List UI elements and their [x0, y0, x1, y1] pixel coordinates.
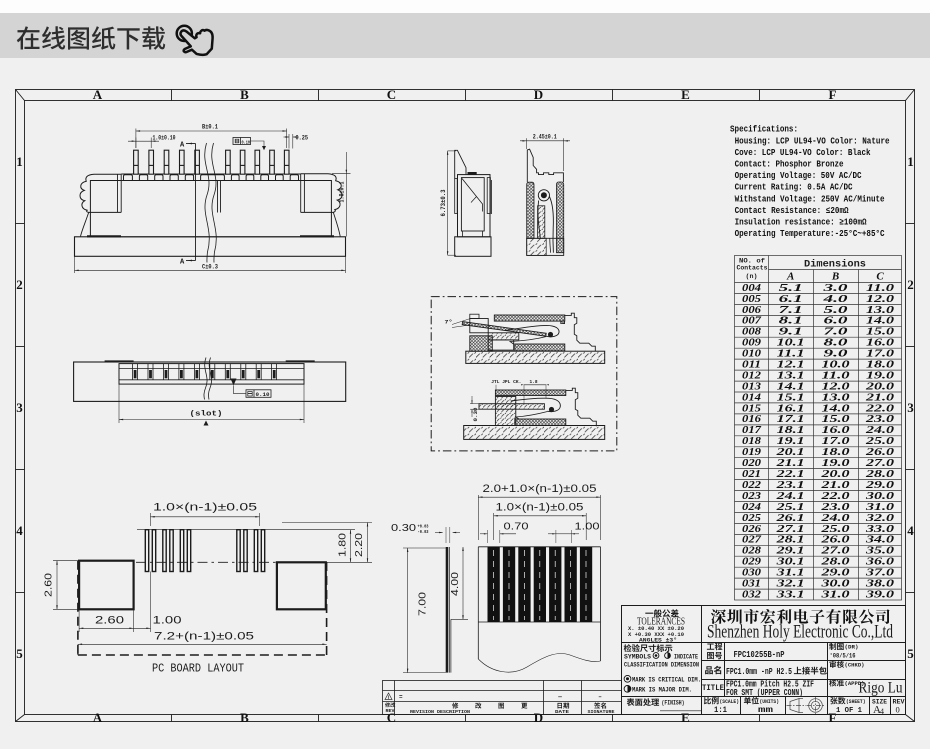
svg-text:Housing: LCP UL94-VO Color: Na: Housing: LCP UL94-VO Color: Nature: [735, 136, 890, 146]
svg-text:MARK IS CRITICAL DIM.: MARK IS CRITICAL DIM.: [632, 677, 701, 684]
svg-text:A: A: [93, 710, 103, 725]
svg-text:4.0: 4.0: [822, 294, 849, 305]
svg-text:28.0: 28.0: [864, 469, 895, 480]
svg-text:Contact Resistance: ≤20mΩ: Contact Resistance: ≤20mΩ: [735, 206, 849, 216]
svg-text:Contacts: Contacts: [737, 265, 768, 272]
svg-text:2.60: 2.60: [43, 573, 55, 597]
svg-text:22.1: 22.1: [775, 469, 805, 480]
svg-text:17.0: 17.0: [866, 349, 895, 360]
svg-text:13.0: 13.0: [822, 392, 851, 403]
svg-text:B: B: [831, 271, 839, 283]
svg-text:5.1: 5.1: [779, 283, 803, 294]
svg-text:0: 0: [896, 705, 900, 715]
svg-text:14.1: 14.1: [777, 381, 805, 392]
svg-text:31.0: 31.0: [820, 589, 851, 600]
svg-text:028: 028: [742, 546, 762, 557]
svg-text:031: 031: [742, 579, 761, 590]
svg-text:27.0: 27.0: [864, 458, 895, 469]
svg-text:32.0: 32.0: [864, 513, 895, 524]
svg-text:Shenzhen Holy Electronic Co.,L: Shenzhen Holy Electronic Co.,Ltd: [707, 623, 894, 643]
svg-text:010: 010: [742, 349, 762, 360]
svg-text:015: 015: [742, 403, 761, 414]
svg-text:FPC1.0mm -nP H2.5: FPC1.0mm -nP H2.5: [726, 667, 792, 677]
svg-text:024: 024: [742, 502, 761, 513]
svg-text:Insulation resistance: ≥100mΩ: Insulation resistance: ≥100mΩ: [735, 218, 867, 228]
svg-text:11.0: 11.0: [822, 370, 851, 381]
svg-text:Current Rating: 0.5A AC/DC: Current Rating: 0.5A AC/DC: [735, 183, 853, 193]
svg-text:025: 025: [742, 513, 761, 524]
svg-text:35.0: 35.0: [864, 546, 895, 557]
svg-text:032: 032: [742, 589, 761, 600]
svg-text:9.1: 9.1: [779, 327, 803, 338]
svg-text:0.10: 0.10: [242, 139, 251, 145]
svg-text:29.1: 29.1: [775, 546, 805, 557]
svg-text:20.0: 20.0: [820, 469, 851, 480]
svg-text:20.1: 20.1: [775, 447, 805, 458]
svg-text:1.0×(n-1)±0.05: 1.0×(n-1)±0.05: [496, 502, 584, 514]
svg-text:005: 005: [742, 294, 761, 305]
svg-text:Operating Temperature:-25°C~+8: Operating Temperature:-25°C~+85°C: [735, 229, 885, 239]
svg-text:29.0: 29.0: [864, 480, 895, 491]
svg-text:34.0: 34.0: [864, 535, 895, 546]
svg-text:11.0: 11.0: [866, 283, 895, 294]
svg-text:009: 009: [742, 338, 762, 349]
svg-text:19.1: 19.1: [777, 436, 805, 447]
svg-text:30.0: 30.0: [820, 579, 851, 590]
svg-text:018: 018: [742, 436, 762, 447]
svg-text:B±0.1: B±0.1: [202, 124, 218, 131]
svg-text:1: 1: [16, 154, 23, 169]
svg-text:JTL JPL CK.: JTL JPL CK.: [491, 380, 521, 385]
svg-text:2.20: 2.20: [353, 533, 365, 557]
svg-text:2: 2: [907, 277, 914, 292]
svg-text:3.0: 3.0: [822, 283, 849, 294]
svg-text:2.60: 2.60: [95, 615, 124, 627]
svg-text:24.0: 24.0: [820, 513, 851, 524]
svg-text:7.1: 7.1: [779, 305, 803, 316]
svg-text:26.1: 26.1: [775, 513, 805, 524]
svg-text:4.00: 4.00: [449, 572, 461, 596]
svg-text:CLASSIFICATION DIMENSION: CLASSIFICATION DIMENSION: [624, 661, 699, 668]
svg-text:12.0: 12.0: [866, 294, 895, 305]
svg-text:0.30: 0.30: [473, 408, 479, 422]
svg-text:014: 014: [742, 392, 761, 403]
svg-text:Dimensions: Dimensions: [804, 259, 866, 271]
svg-text:Specifications:: Specifications:: [730, 125, 798, 135]
svg-text:23.0: 23.0: [820, 502, 851, 513]
svg-text:—: —: [557, 693, 562, 700]
svg-text:PC BOARD LAYOUT: PC BOARD LAYOUT: [152, 662, 244, 676]
svg-text:31.0: 31.0: [864, 502, 895, 513]
svg-text:MARK IS MAJOR DIM.: MARK IS MAJOR DIM.: [632, 687, 692, 694]
svg-text:-0.03: -0.03: [418, 529, 429, 535]
svg-text:16.0: 16.0: [866, 338, 895, 349]
svg-text:18.0: 18.0: [822, 447, 851, 458]
svg-text:21.0: 21.0: [864, 392, 895, 403]
svg-text:38.0: 38.0: [864, 579, 895, 590]
svg-text:E: E: [681, 710, 690, 725]
svg-text:ANGLES ±3°: ANGLES ±3°: [639, 636, 677, 643]
svg-text:15.0: 15.0: [866, 327, 895, 338]
svg-text:REVISION DESCRIPTION: REVISION DESCRIPTION: [410, 709, 470, 715]
svg-text:022: 022: [742, 480, 761, 491]
svg-text:23.0: 23.0: [864, 414, 895, 425]
svg-text:39.0: 39.0: [864, 589, 895, 600]
svg-text:17.1: 17.1: [777, 414, 805, 425]
svg-text:(UNITS): (UNITS): [760, 698, 780, 705]
svg-text:004: 004: [742, 283, 761, 294]
svg-text:30.1: 30.1: [775, 557, 805, 568]
svg-text:22.0: 22.0: [864, 403, 895, 414]
svg-text:18.1: 18.1: [777, 425, 805, 436]
svg-text:6.1: 6.1: [779, 294, 803, 305]
svg-text:=: =: [399, 694, 403, 701]
svg-text:011: 011: [742, 360, 761, 371]
svg-text:1.0±0.10: 1.0±0.10: [153, 135, 176, 142]
svg-text:020: 020: [742, 458, 762, 469]
svg-text:14.0: 14.0: [822, 403, 851, 414]
svg-text:5: 5: [16, 646, 23, 661]
svg-text:007: 007: [742, 316, 762, 327]
svg-text:TITLE: TITLE: [702, 684, 724, 693]
svg-text:11.1: 11.1: [777, 349, 805, 360]
svg-text:36.0: 36.0: [864, 557, 895, 568]
svg-text:32.1: 32.1: [775, 579, 805, 590]
svg-text:006: 006: [742, 305, 762, 316]
svg-text:Cove: LCP UL94-VO Color: Black: Cove: LCP UL94-VO Color: Black: [735, 148, 871, 158]
svg-text:27.1: 27.1: [775, 524, 805, 535]
svg-text:B: B: [240, 710, 249, 725]
svg-text:Operating Voltage: 50V AC/DC: Operating Voltage: 50V AC/DC: [735, 171, 862, 181]
svg-text:REV: REV: [386, 710, 396, 714]
svg-text:1 OF 1: 1 OF 1: [836, 707, 862, 715]
svg-text:D: D: [534, 87, 543, 102]
svg-text:(FINISH): (FINISH): [662, 700, 685, 707]
svg-text:1.00: 1.00: [575, 521, 600, 533]
svg-text:33.0: 33.0: [864, 524, 895, 535]
svg-text:19.0: 19.0: [866, 370, 895, 381]
svg-text:1:1: 1:1: [714, 706, 727, 715]
svg-text:8.1: 8.1: [779, 316, 803, 327]
svg-text:!: !: [387, 695, 390, 701]
svg-text:21.0: 21.0: [820, 480, 851, 491]
svg-text:2.45±0.1: 2.45±0.1: [533, 133, 557, 140]
svg-text:9.0: 9.0: [824, 349, 849, 360]
svg-text:B: B: [240, 87, 249, 102]
svg-text:C: C: [876, 271, 884, 283]
svg-text:3: 3: [907, 400, 914, 415]
svg-text:12.0: 12.0: [822, 381, 851, 392]
svg-text:16.1: 16.1: [777, 403, 805, 414]
svg-text:7°: 7°: [445, 319, 453, 326]
svg-text:Withstand Voltage: 250V AC/Min: Withstand Voltage: 250V AC/Minute: [735, 194, 885, 204]
svg-text:27.0: 27.0: [820, 546, 851, 557]
svg-text:25.0: 25.0: [820, 524, 851, 535]
svg-text:14.0: 14.0: [866, 316, 895, 327]
svg-text:030: 030: [742, 568, 762, 579]
svg-text:7.00: 7.00: [417, 592, 429, 616]
svg-text:15.0: 15.0: [822, 414, 851, 425]
svg-text:26.0: 26.0: [864, 447, 895, 458]
svg-text:A: A: [93, 87, 103, 102]
svg-text:E: E: [681, 87, 690, 102]
svg-text:Rigo Lu: Rigo Lu: [859, 680, 903, 697]
svg-text:(SHEET): (SHEET): [846, 698, 866, 705]
svg-text:NO. of: NO. of: [739, 257, 765, 264]
svg-text:1.80: 1.80: [337, 533, 349, 557]
svg-text:5: 5: [907, 646, 914, 661]
svg-text:16.0: 16.0: [822, 425, 851, 436]
svg-text:21.1: 21.1: [775, 458, 805, 469]
svg-text:6.73±0.3: 6.73±0.3: [440, 189, 447, 216]
svg-text:mm: mm: [758, 706, 773, 715]
svg-text:28.0: 28.0: [820, 557, 851, 568]
svg-text:D: D: [534, 710, 543, 725]
svg-text:20.0: 20.0: [864, 381, 895, 392]
svg-text:029: 029: [742, 557, 762, 568]
svg-text:33.1: 33.1: [775, 589, 805, 600]
svg-text:F: F: [829, 87, 837, 102]
svg-text:2.0+1.0×(n-1)±0.05: 2.0+1.0×(n-1)±0.05: [483, 483, 597, 495]
svg-text:INDICATE: INDICATE: [674, 653, 698, 660]
svg-text:017: 017: [742, 425, 762, 436]
svg-text:17.0: 17.0: [822, 436, 851, 447]
svg-text:1.8: 1.8: [530, 379, 538, 385]
svg-text:027: 027: [742, 535, 762, 546]
svg-text:FOR SMT (UPPER CONN): FOR SMT (UPPER CONN): [726, 688, 803, 698]
svg-text:30.0: 30.0: [864, 491, 895, 502]
svg-text:(SCALE): (SCALE): [720, 698, 740, 705]
svg-text:23.1: 23.1: [775, 480, 805, 491]
svg-text:13.0: 13.0: [866, 305, 895, 316]
svg-text:2: 2: [16, 277, 23, 292]
svg-text:A: A: [786, 271, 794, 283]
svg-text:37.0: 37.0: [864, 568, 895, 579]
svg-text:26.0: 26.0: [820, 535, 851, 546]
svg-text:12.1: 12.1: [777, 360, 805, 371]
svg-text:7.0: 7.0: [824, 327, 849, 338]
svg-text:0.10: 0.10: [256, 392, 270, 398]
svg-text:012: 012: [742, 370, 761, 381]
svg-text:0.30: 0.30: [391, 522, 416, 534]
svg-text:31.1: 31.1: [775, 568, 805, 579]
svg-text:SYMBOLS: SYMBOLS: [624, 653, 651, 660]
svg-text:4: 4: [16, 523, 23, 538]
svg-text:28.1: 28.1: [775, 535, 805, 546]
svg-text:008: 008: [742, 327, 762, 338]
svg-text:24.1: 24.1: [775, 491, 805, 502]
svg-text:8.0: 8.0: [824, 338, 849, 349]
svg-text:4: 4: [907, 523, 914, 538]
svg-text:24.0: 24.0: [864, 425, 895, 436]
svg-text:(DR): (DR): [845, 644, 859, 651]
svg-text:021: 021: [742, 469, 761, 480]
svg-text:19.0: 19.0: [822, 458, 851, 469]
svg-text:(n): (n): [746, 273, 758, 280]
svg-text:019: 019: [742, 447, 762, 458]
svg-text:18.0: 18.0: [866, 360, 895, 371]
svg-text:FPC10255B-nP: FPC10255B-nP: [734, 649, 785, 660]
svg-text:–: –: [598, 693, 602, 700]
svg-text:'08/5/16: '08/5/16: [830, 652, 856, 660]
svg-text:016: 016: [742, 414, 762, 425]
svg-text:1.00: 1.00: [153, 615, 182, 627]
svg-text:3: 3: [16, 400, 23, 415]
svg-text:DATE: DATE: [555, 709, 569, 715]
svg-text:(CHKD): (CHKD): [845, 662, 865, 669]
svg-text:0.70: 0.70: [504, 521, 529, 533]
svg-text:6.0: 6.0: [824, 316, 849, 327]
svg-text:Contact: Phosphor Bronze: Contact: Phosphor Bronze: [735, 160, 844, 170]
svg-text:1: 1: [907, 154, 914, 169]
svg-text:4: 4: [880, 707, 884, 716]
svg-text:C±0.3: C±0.3: [202, 264, 218, 271]
svg-text:22.0: 22.0: [820, 491, 851, 502]
svg-text:15.1: 15.1: [777, 392, 805, 403]
svg-text:10.1: 10.1: [777, 338, 805, 349]
svg-text:1.8±0.1: 1.8±0.1: [339, 181, 346, 202]
svg-text:+0.03: +0.03: [418, 524, 429, 530]
svg-text:25.0: 25.0: [864, 436, 895, 447]
svg-text:SIGNATURE: SIGNATURE: [588, 709, 615, 715]
svg-text:25.1: 25.1: [775, 502, 805, 513]
svg-text:10.0: 10.0: [822, 360, 851, 371]
svg-text:7.2+(n-1)±0.05: 7.2+(n-1)±0.05: [154, 630, 254, 642]
svg-text:5.0: 5.0: [824, 305, 849, 316]
svg-text:13.1: 13.1: [777, 370, 805, 381]
svg-text:1.0×(n-1)±0.05: 1.0×(n-1)±0.05: [153, 502, 257, 514]
svg-text:026: 026: [742, 524, 762, 535]
svg-text:023: 023: [742, 491, 761, 502]
svg-text:013: 013: [742, 381, 761, 392]
svg-text:C: C: [387, 87, 396, 102]
svg-text:(slot): (slot): [190, 411, 223, 419]
svg-text:29.0: 29.0: [820, 568, 851, 579]
svg-text:0.25: 0.25: [296, 135, 309, 142]
